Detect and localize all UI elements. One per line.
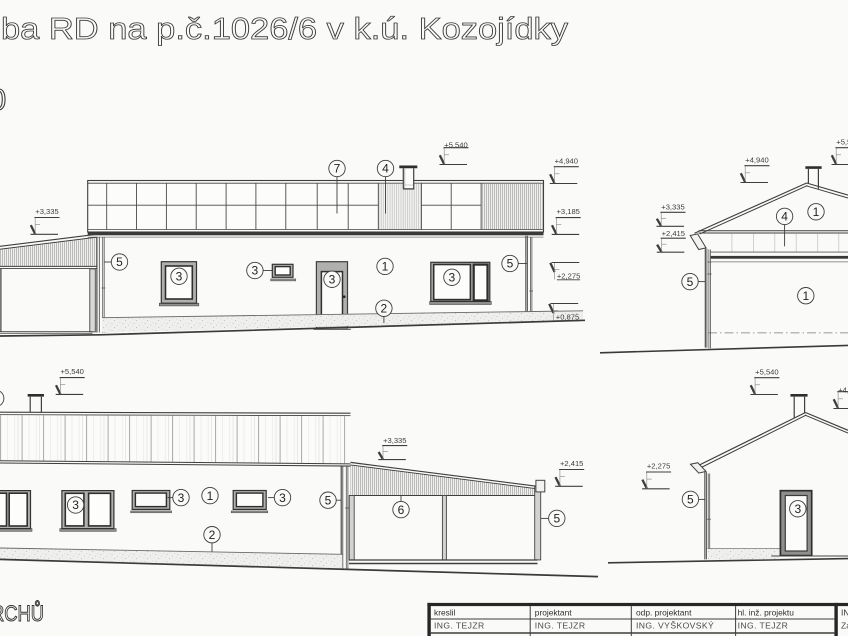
svg-text:+3,335: +3,335 (383, 436, 406, 445)
svg-text:4: 4 (781, 210, 788, 224)
svg-text:+2,415: +2,415 (560, 459, 583, 468)
svg-text:5: 5 (553, 512, 560, 526)
svg-text:ING. TEJZR: ING. TEJZR (434, 621, 485, 631)
svg-text:ING. VYŠKOVSKÝ: ING. VYŠKOVSKÝ (636, 621, 714, 631)
svg-text:+2,275: +2,275 (647, 462, 670, 471)
svg-text:+4,940: +4,940 (838, 385, 848, 394)
svg-text:1: 1 (813, 205, 820, 219)
svg-text:hl. inž. projektu: hl. inž. projektu (738, 607, 795, 617)
svg-text:kreslil: kreslil (434, 607, 456, 617)
svg-text:ING. TEJZR: ING. TEJZR (535, 621, 586, 631)
svg-text:1: 1 (207, 489, 214, 503)
svg-text:5: 5 (507, 257, 514, 271)
svg-text:6: 6 (398, 503, 405, 517)
svg-text:+5,540: +5,540 (60, 367, 83, 376)
svg-text:3: 3 (329, 273, 336, 287)
svg-text:+3,185: +3,185 (556, 207, 579, 216)
svg-text:3: 3 (176, 270, 183, 284)
svg-text:projektant: projektant (535, 607, 572, 617)
svg-text:3: 3 (279, 491, 286, 505)
svg-text:+4,940: +4,940 (745, 155, 768, 164)
svg-text:ING. TEJZR: ING. TEJZR (738, 621, 789, 631)
svg-text:+2,275: +2,275 (557, 272, 580, 281)
svg-text:+4,940: +4,940 (555, 156, 578, 165)
svg-text:+5,540: +5,540 (755, 367, 778, 376)
svg-text:+3,335: +3,335 (35, 207, 58, 216)
svg-text:+2,415: +2,415 (662, 229, 685, 238)
svg-text:5: 5 (325, 493, 332, 507)
svg-text:5: 5 (687, 275, 694, 289)
svg-text:1: 1 (382, 260, 389, 274)
svg-text:+5,540: +5,540 (444, 140, 467, 149)
svg-text:3: 3 (252, 264, 259, 278)
svg-text:+5,540: +5,540 (836, 137, 848, 146)
svg-text:5: 5 (687, 493, 694, 507)
svg-text:IN: IN (841, 608, 848, 618)
svg-text:3: 3 (178, 491, 185, 505)
svg-text:7: 7 (334, 162, 341, 176)
svg-text:RCHŮ: RCHŮ (0, 601, 44, 626)
svg-text:ba RD na p.č.1026/6 v k.ú. Koz: ba RD na p.č.1026/6 v k.ú. Kozojídky (1, 11, 569, 46)
svg-text:Zá: Zá (841, 621, 848, 631)
svg-text:+3,335: +3,335 (661, 203, 684, 212)
svg-text:1: 1 (802, 289, 809, 303)
svg-text:3: 3 (449, 271, 456, 285)
svg-text:2: 2 (381, 302, 388, 316)
svg-text:3: 3 (72, 498, 79, 512)
svg-text:3: 3 (794, 502, 801, 516)
svg-text:odp. projektant: odp. projektant (636, 607, 692, 617)
svg-text:0: 0 (0, 82, 6, 117)
svg-text:5: 5 (116, 255, 123, 269)
svg-text:4: 4 (382, 162, 389, 176)
svg-text:+0,875: +0,875 (556, 313, 579, 322)
svg-text:2: 2 (209, 528, 216, 542)
